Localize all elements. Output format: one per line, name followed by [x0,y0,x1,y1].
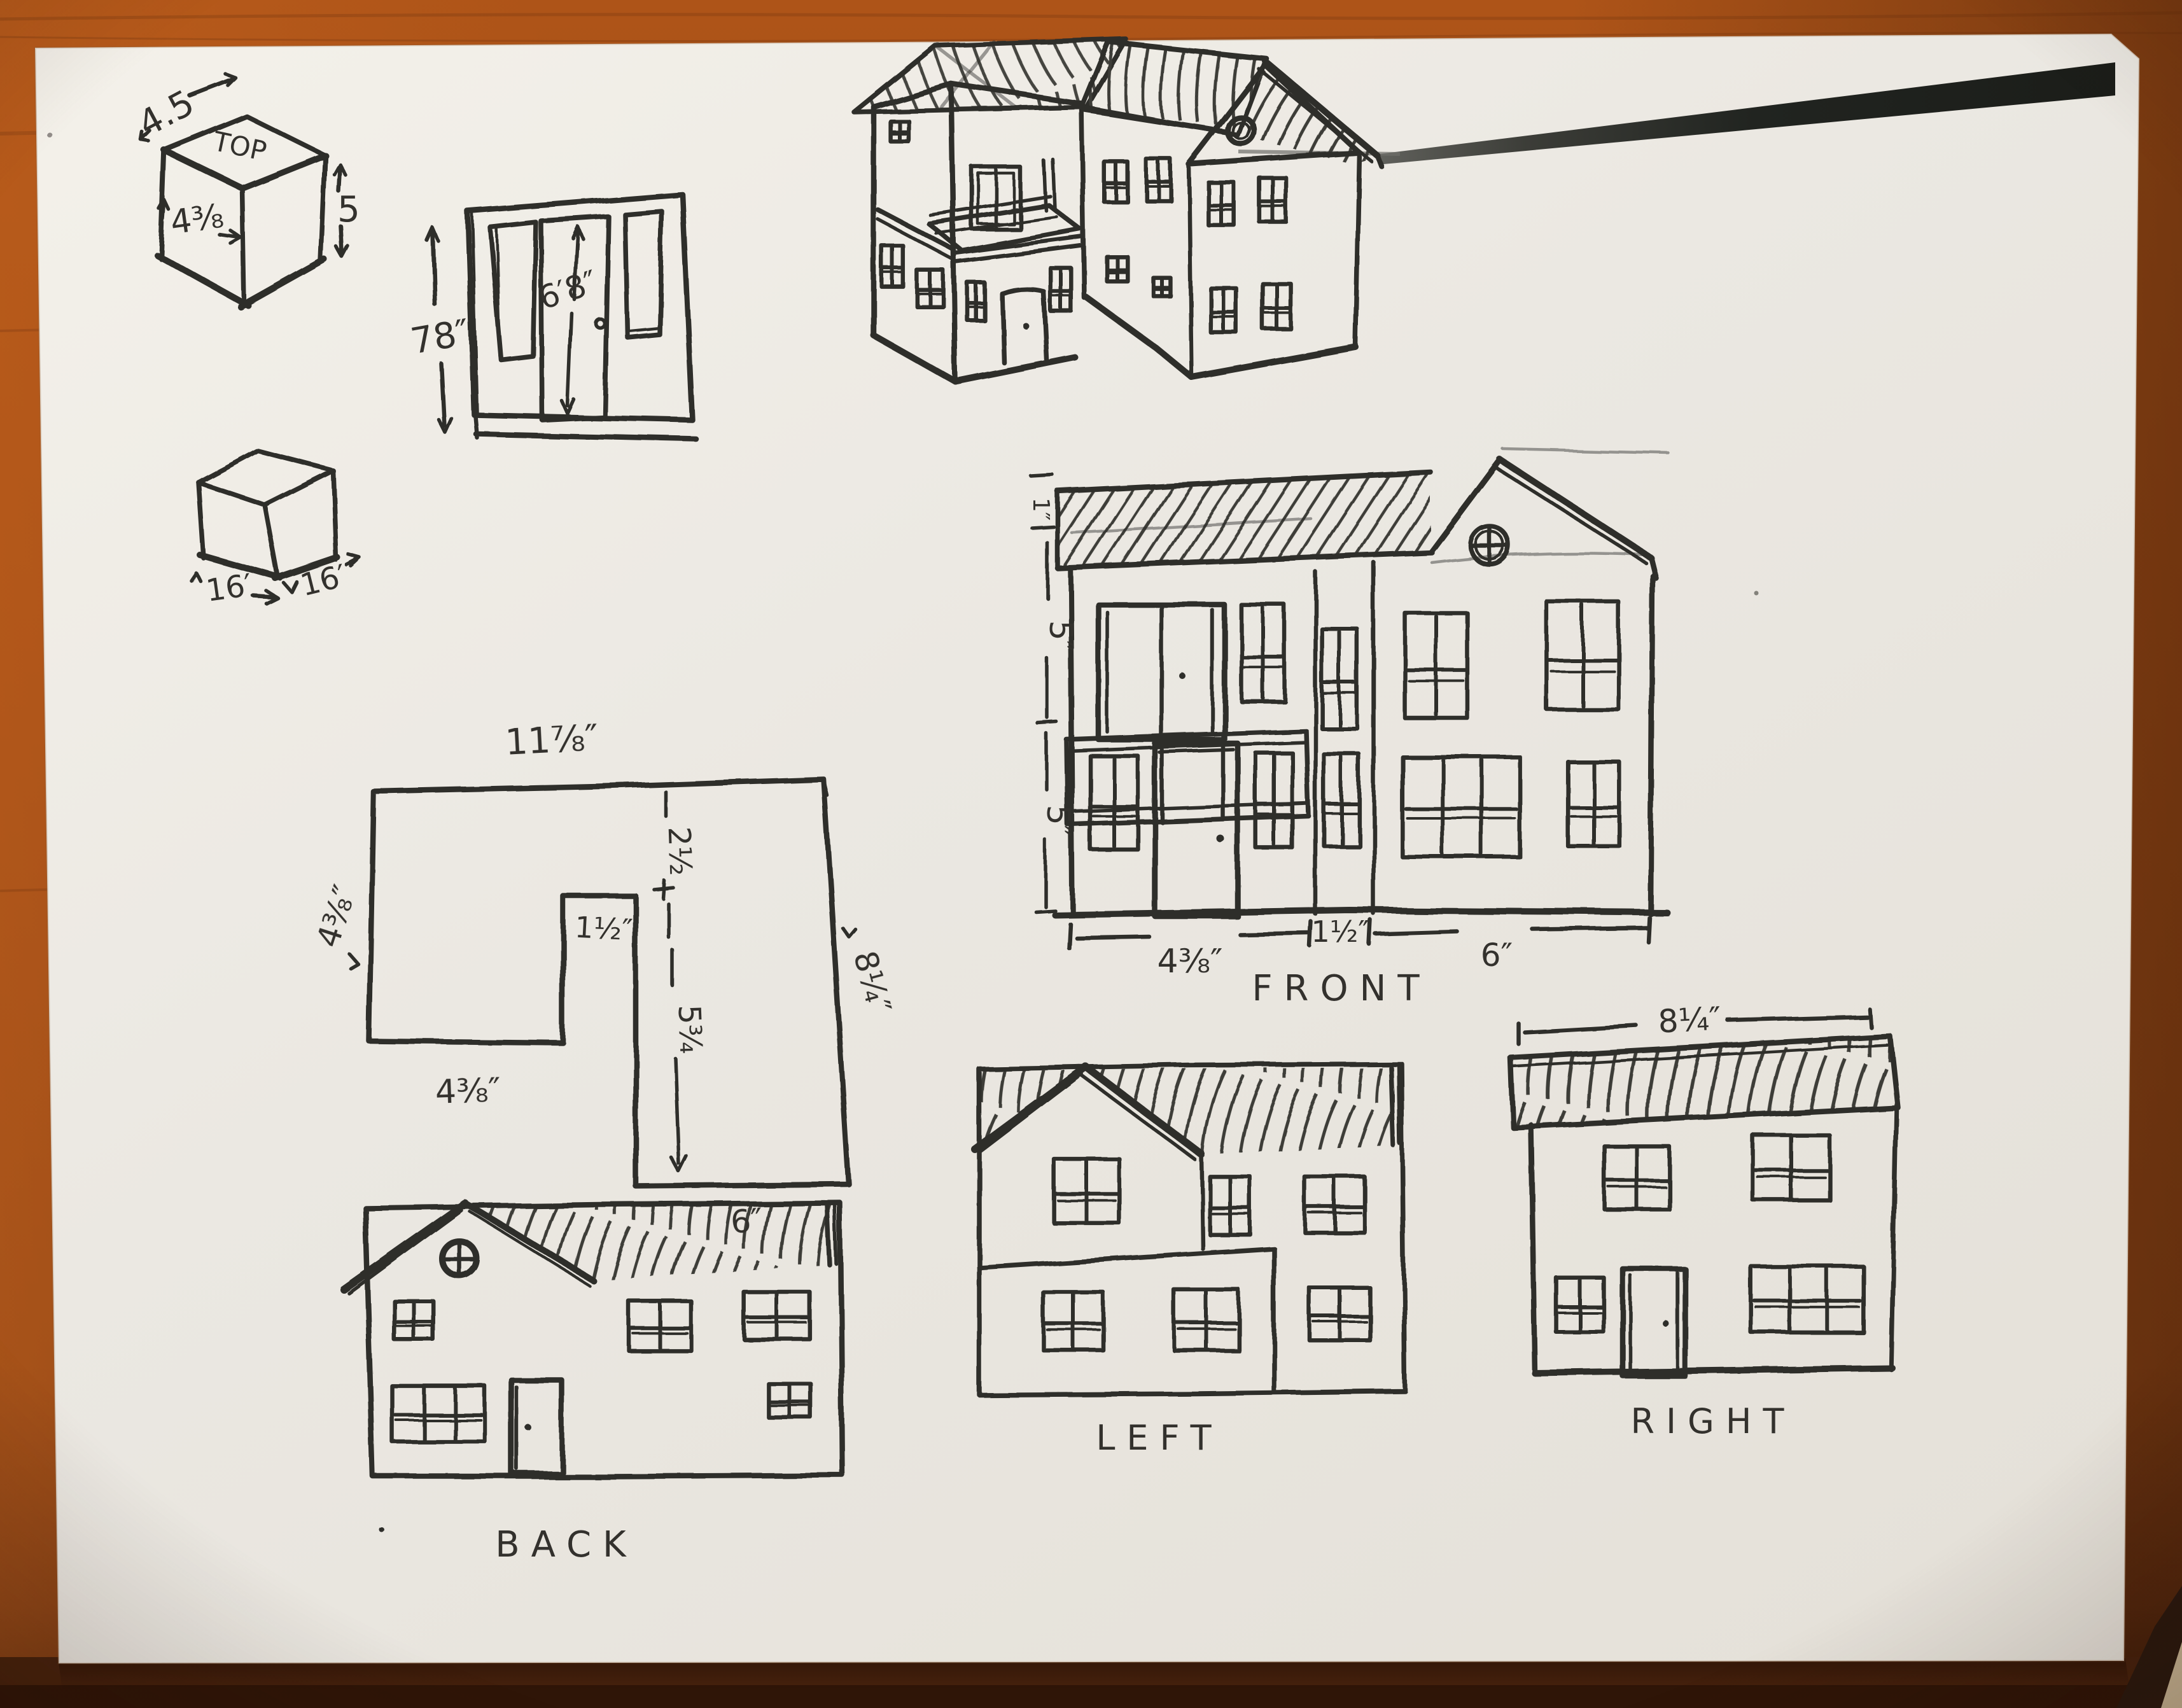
photo-vignette [0,0,2182,1708]
photo-scene: TOP 4.5 4⅜ 5 16′ 16′ 78″ 6′8″ 11⅞″ 4⅜″ 2… [0,0,2182,1708]
